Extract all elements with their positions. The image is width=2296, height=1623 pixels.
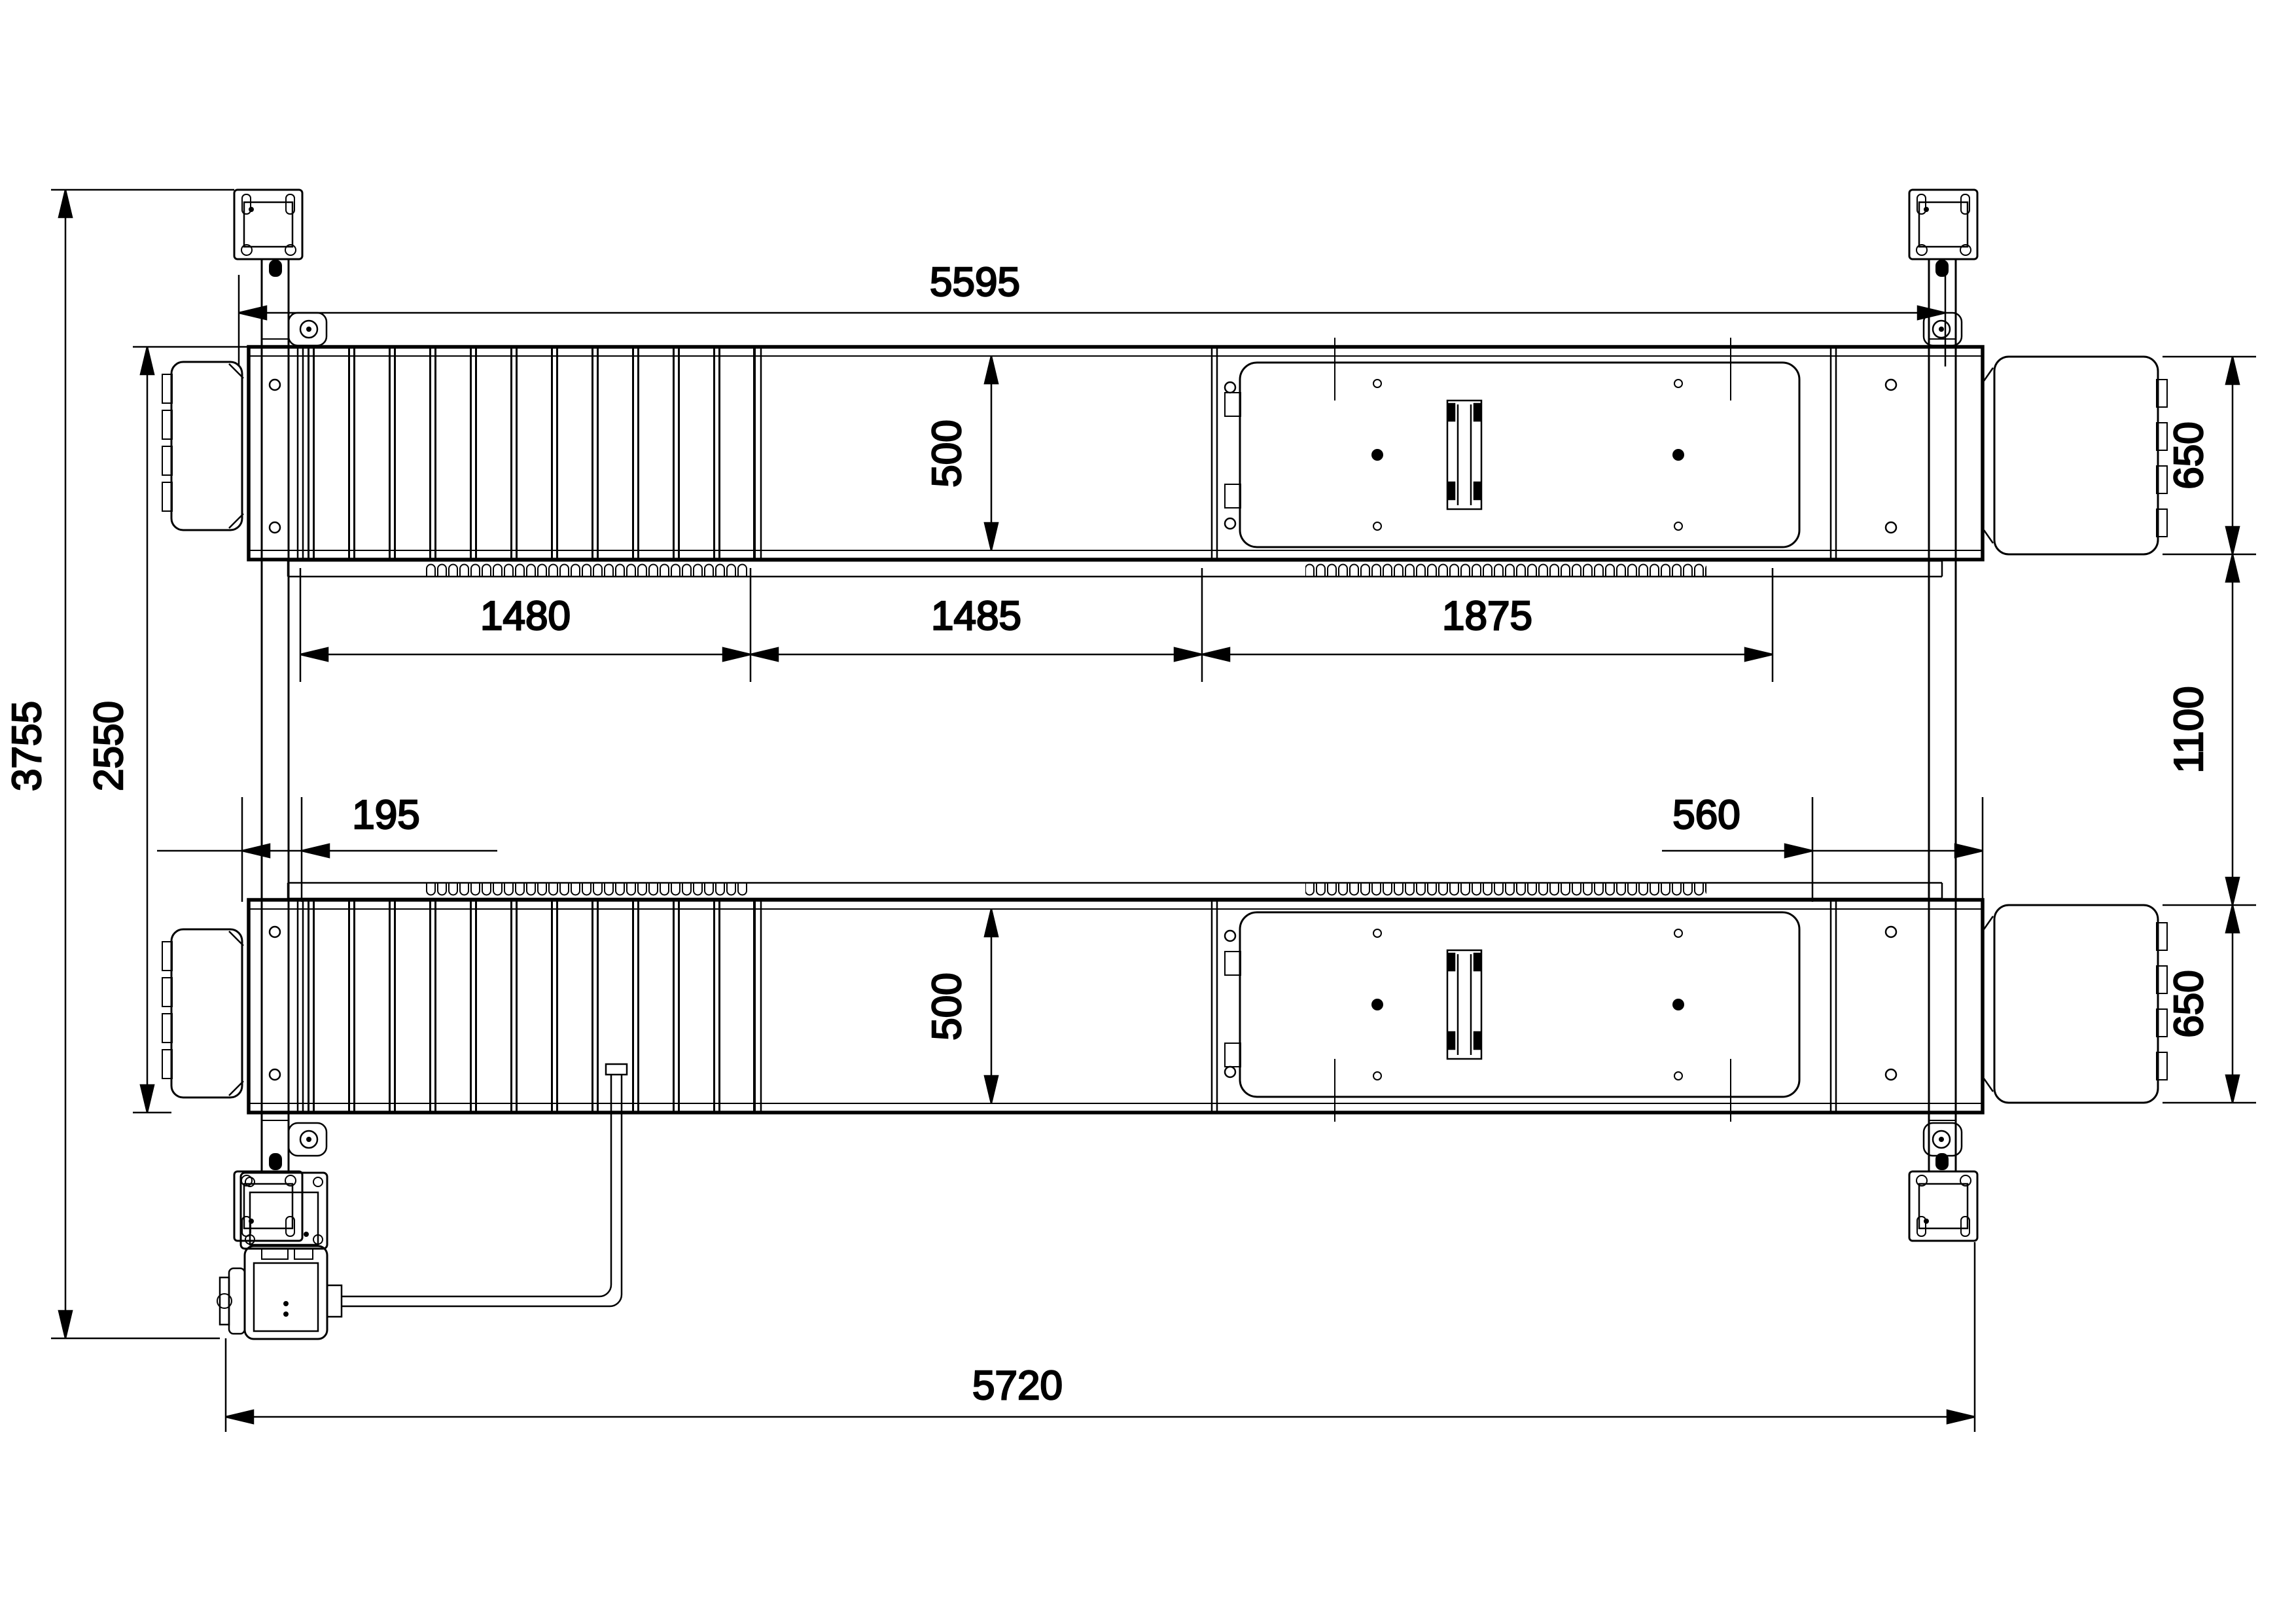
- dim-runway-segments: 1480 1485 1875: [300, 568, 1773, 682]
- ramp-top: [1984, 357, 2167, 554]
- jack-track-top: [1447, 401, 1481, 509]
- wheel-stop-top: [162, 362, 243, 530]
- post-top-left: [234, 190, 327, 346]
- dim-runway-width-bottom-label: 500: [925, 972, 970, 1040]
- wheel-stop-bottom: [162, 929, 243, 1097]
- dim-segment-mid-label: 1485: [931, 594, 1021, 639]
- dim-right-offset-label: 560: [1672, 793, 1740, 838]
- ramp-bottom: [1984, 905, 2167, 1103]
- dim-right-chain: 650 1100 650: [2163, 357, 2256, 1103]
- post-bottom-left: [234, 1123, 327, 1241]
- dim-right-offset: 560: [1662, 793, 1983, 902]
- dim-runway-outer-width-label: 2550: [86, 701, 132, 791]
- dim-overall-width-label: 3755: [5, 701, 50, 791]
- dim-ramp-width-bottom-label: 650: [2166, 970, 2212, 1037]
- dim-ramp-width-top-label: 650: [2166, 421, 2212, 489]
- dim-runway-width-bottom: 500: [925, 909, 998, 1103]
- lock-rail-top: [288, 561, 1942, 577]
- runway-top: [249, 338, 1983, 560]
- jack-track-bottom: [1447, 950, 1481, 1059]
- slip-plate-bottom: [1240, 912, 1799, 1097]
- post-top-right: [1909, 190, 1977, 346]
- dim-runway-outer-width: 2550: [86, 347, 311, 1113]
- dim-runway-width-top: 500: [925, 356, 998, 550]
- four-post-lift-plan-drawing: 5595 1480 1485 1875 195 560: [0, 0, 2296, 1623]
- dim-segment-rib-label: 1480: [480, 594, 571, 639]
- lock-rail-bottom: [288, 883, 1942, 899]
- dim-track-gap-label: 1100: [2166, 686, 2212, 773]
- post-column-right: [1929, 259, 1956, 1171]
- dim-overall-bottom: 5720: [226, 1242, 1975, 1432]
- drawing-sheet: 5595 1480 1485 1875 195 560: [0, 0, 2296, 1623]
- post-column-left: [262, 259, 289, 1171]
- dim-overall-bottom-label: 5720: [972, 1363, 1063, 1408]
- dim-segment-plate-label: 1875: [1442, 594, 1532, 639]
- motor-pump: [217, 1246, 342, 1339]
- post-bottom-right: [1909, 1123, 1977, 1241]
- dim-left-offset-label: 195: [352, 793, 419, 838]
- slip-plate-top: [1240, 363, 1799, 547]
- dim-overall-top-label: 5595: [930, 260, 1020, 305]
- dim-runway-width-top-label: 500: [925, 419, 970, 487]
- runway-bottom: [249, 900, 1983, 1122]
